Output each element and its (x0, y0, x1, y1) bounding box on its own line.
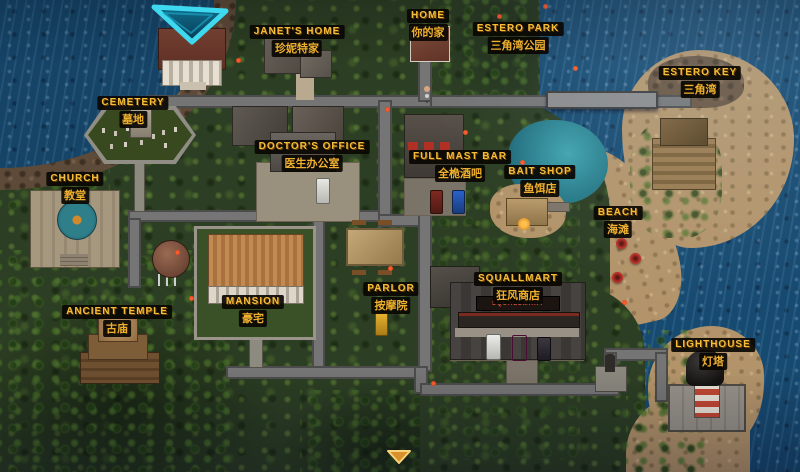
location-name-zh: 珍妮特家 (272, 40, 322, 57)
flower-bush (463, 130, 468, 135)
location-name-en: SQUALLMART (474, 272, 562, 286)
map-label-lighthouse[interactable]: LIGHTHOUSE灯塔 (671, 338, 755, 370)
location-name-zh: 鱼饵店 (520, 180, 559, 197)
location-name-zh: 全桅酒吧 (435, 165, 485, 182)
statue-figure (605, 354, 615, 372)
car-dark (537, 337, 551, 361)
road-segment (420, 383, 620, 396)
bridge (546, 91, 658, 109)
map-label-parlor[interactable]: PARLOR按摩院 (363, 282, 418, 314)
island-map: SQUALLMART HOME你的家JANET'S HOME珍妮特家ESTERO… (0, 0, 800, 472)
flower-bush (236, 58, 241, 63)
location-name-en: JANET'S HOME (250, 25, 345, 39)
church-dome (57, 200, 97, 240)
squallmart-storefront (458, 312, 580, 328)
park-pavilion (346, 228, 404, 266)
player-marker (150, 2, 230, 46)
water-tower (152, 240, 190, 278)
car-white (316, 178, 330, 204)
cemetery-path (134, 160, 145, 212)
flower-bush (385, 107, 390, 112)
tombstones (102, 128, 105, 133)
location-name-zh: 海滩 (604, 221, 632, 238)
map-label-mansion[interactable]: MANSION豪宅 (222, 295, 284, 327)
location-name-en: CHURCH (46, 172, 103, 186)
church-steps (60, 254, 88, 266)
car-blue (452, 190, 465, 214)
road-segment (128, 218, 141, 288)
location-name-zh: 教堂 (61, 187, 89, 204)
car-magenta (512, 335, 527, 361)
pedestrian (424, 86, 430, 92)
map-label-home[interactable]: HOME你的家 (407, 9, 449, 41)
beach-umbrella (612, 272, 623, 283)
map-label-janets-home[interactable]: JANET'S HOME珍妮特家 (250, 25, 345, 57)
location-name-en: ANCIENT TEMPLE (62, 305, 172, 319)
lighthouse-tower (694, 382, 720, 418)
location-name-zh: 医生办公室 (281, 155, 342, 172)
map-label-ancient-temple[interactable]: ANCIENT TEMPLE古庙 (62, 305, 172, 337)
road-segment (378, 100, 392, 222)
bait-shop-umbrella (518, 218, 530, 230)
flower-bush (543, 4, 548, 9)
flower-bush (497, 14, 502, 19)
map-label-church[interactable]: CHURCH教堂 (46, 172, 103, 204)
location-name-zh: 按摩院 (371, 297, 410, 314)
location-name-en: HOME (407, 9, 449, 23)
bar-awnings (408, 142, 418, 150)
car-maroon (430, 190, 443, 214)
objective-marker (386, 449, 412, 465)
flower-bush (573, 66, 578, 71)
location-name-en: LIGHTHOUSE (671, 338, 755, 352)
location-name-en: MANSION (222, 295, 284, 309)
beach-umbrella (616, 238, 627, 249)
road-segment (655, 352, 668, 402)
map-label-beach[interactable]: BEACH海滩 (594, 206, 643, 238)
mansion-driveway (249, 336, 263, 368)
map-label-estero-key[interactable]: ESTERO KEY三角湾 (659, 66, 741, 98)
location-name-zh: 狂风商店 (493, 287, 543, 304)
location-name-zh: 灯塔 (699, 353, 727, 370)
road-segment (430, 95, 550, 108)
location-name-en: FULL MAST BAR (409, 150, 511, 164)
flower-bush (431, 381, 436, 386)
location-name-en: PARLOR (363, 282, 418, 296)
map-label-bait-shop[interactable]: BAIT SHOP鱼饵店 (504, 165, 575, 197)
flower-bush (622, 300, 627, 305)
house-steps (180, 82, 206, 90)
mansion-roof (208, 234, 304, 288)
estero-hut-roof (660, 118, 708, 146)
picnic-bench (352, 220, 366, 225)
location-name-en: DOCTOR'S OFFICE (255, 140, 370, 154)
flower-bush (189, 296, 194, 301)
map-label-doctors-office[interactable]: DOCTOR'S OFFICE医生办公室 (255, 140, 370, 172)
location-name-en: CEMETERY (97, 96, 168, 110)
location-name-zh: 三角湾 (681, 81, 720, 98)
car-white (486, 334, 501, 360)
location-name-en: ESTERO KEY (659, 66, 741, 80)
location-name-zh: 豪宅 (239, 310, 267, 327)
map-label-estero-park[interactable]: ESTERO PARK三角湾公园 (473, 22, 564, 54)
location-name-zh: 墓地 (119, 111, 147, 128)
beach-umbrella (630, 253, 641, 264)
location-name-zh: 三角湾公园 (488, 37, 549, 54)
location-name-en: BAIT SHOP (504, 165, 575, 179)
map-label-cemetery[interactable]: CEMETERY墓地 (97, 96, 168, 128)
flower-bush (388, 266, 393, 271)
location-name-zh: 你的家 (409, 24, 448, 41)
flower-bush (175, 250, 180, 255)
map-label-full-mast-bar[interactable]: FULL MAST BAR全桅酒吧 (409, 150, 511, 182)
map-label-squallmart[interactable]: SQUALLMART狂风商店 (474, 272, 562, 304)
location-name-en: BEACH (594, 206, 643, 220)
location-name-zh: 古庙 (103, 320, 131, 337)
vehicle-yellow (375, 312, 388, 336)
location-name-en: ESTERO PARK (473, 22, 564, 36)
